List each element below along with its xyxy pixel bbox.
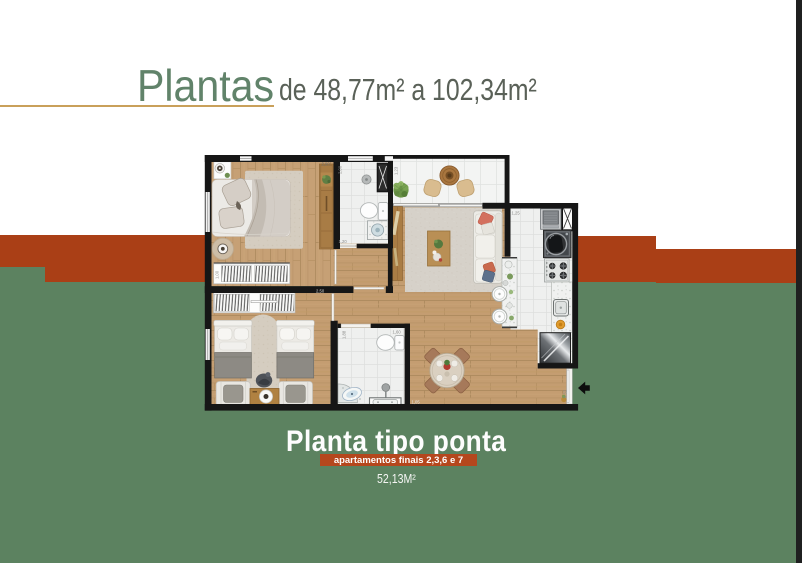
svg-text:1,23: 1,23 xyxy=(394,166,399,175)
svg-text:2,90: 2,90 xyxy=(322,162,331,167)
svg-text:2,00: 2,00 xyxy=(337,165,342,174)
svg-text:0,52: 0,52 xyxy=(563,389,568,398)
svg-text:2,50: 2,50 xyxy=(316,288,325,293)
svg-text:1,05: 1,05 xyxy=(412,399,421,404)
svg-text:1,00: 1,00 xyxy=(215,270,220,279)
svg-text:1,60: 1,60 xyxy=(393,330,402,335)
svg-text:1,20: 1,20 xyxy=(339,239,348,244)
svg-text:1,88: 1,88 xyxy=(342,330,347,339)
svg-text:1,25: 1,25 xyxy=(512,211,521,216)
